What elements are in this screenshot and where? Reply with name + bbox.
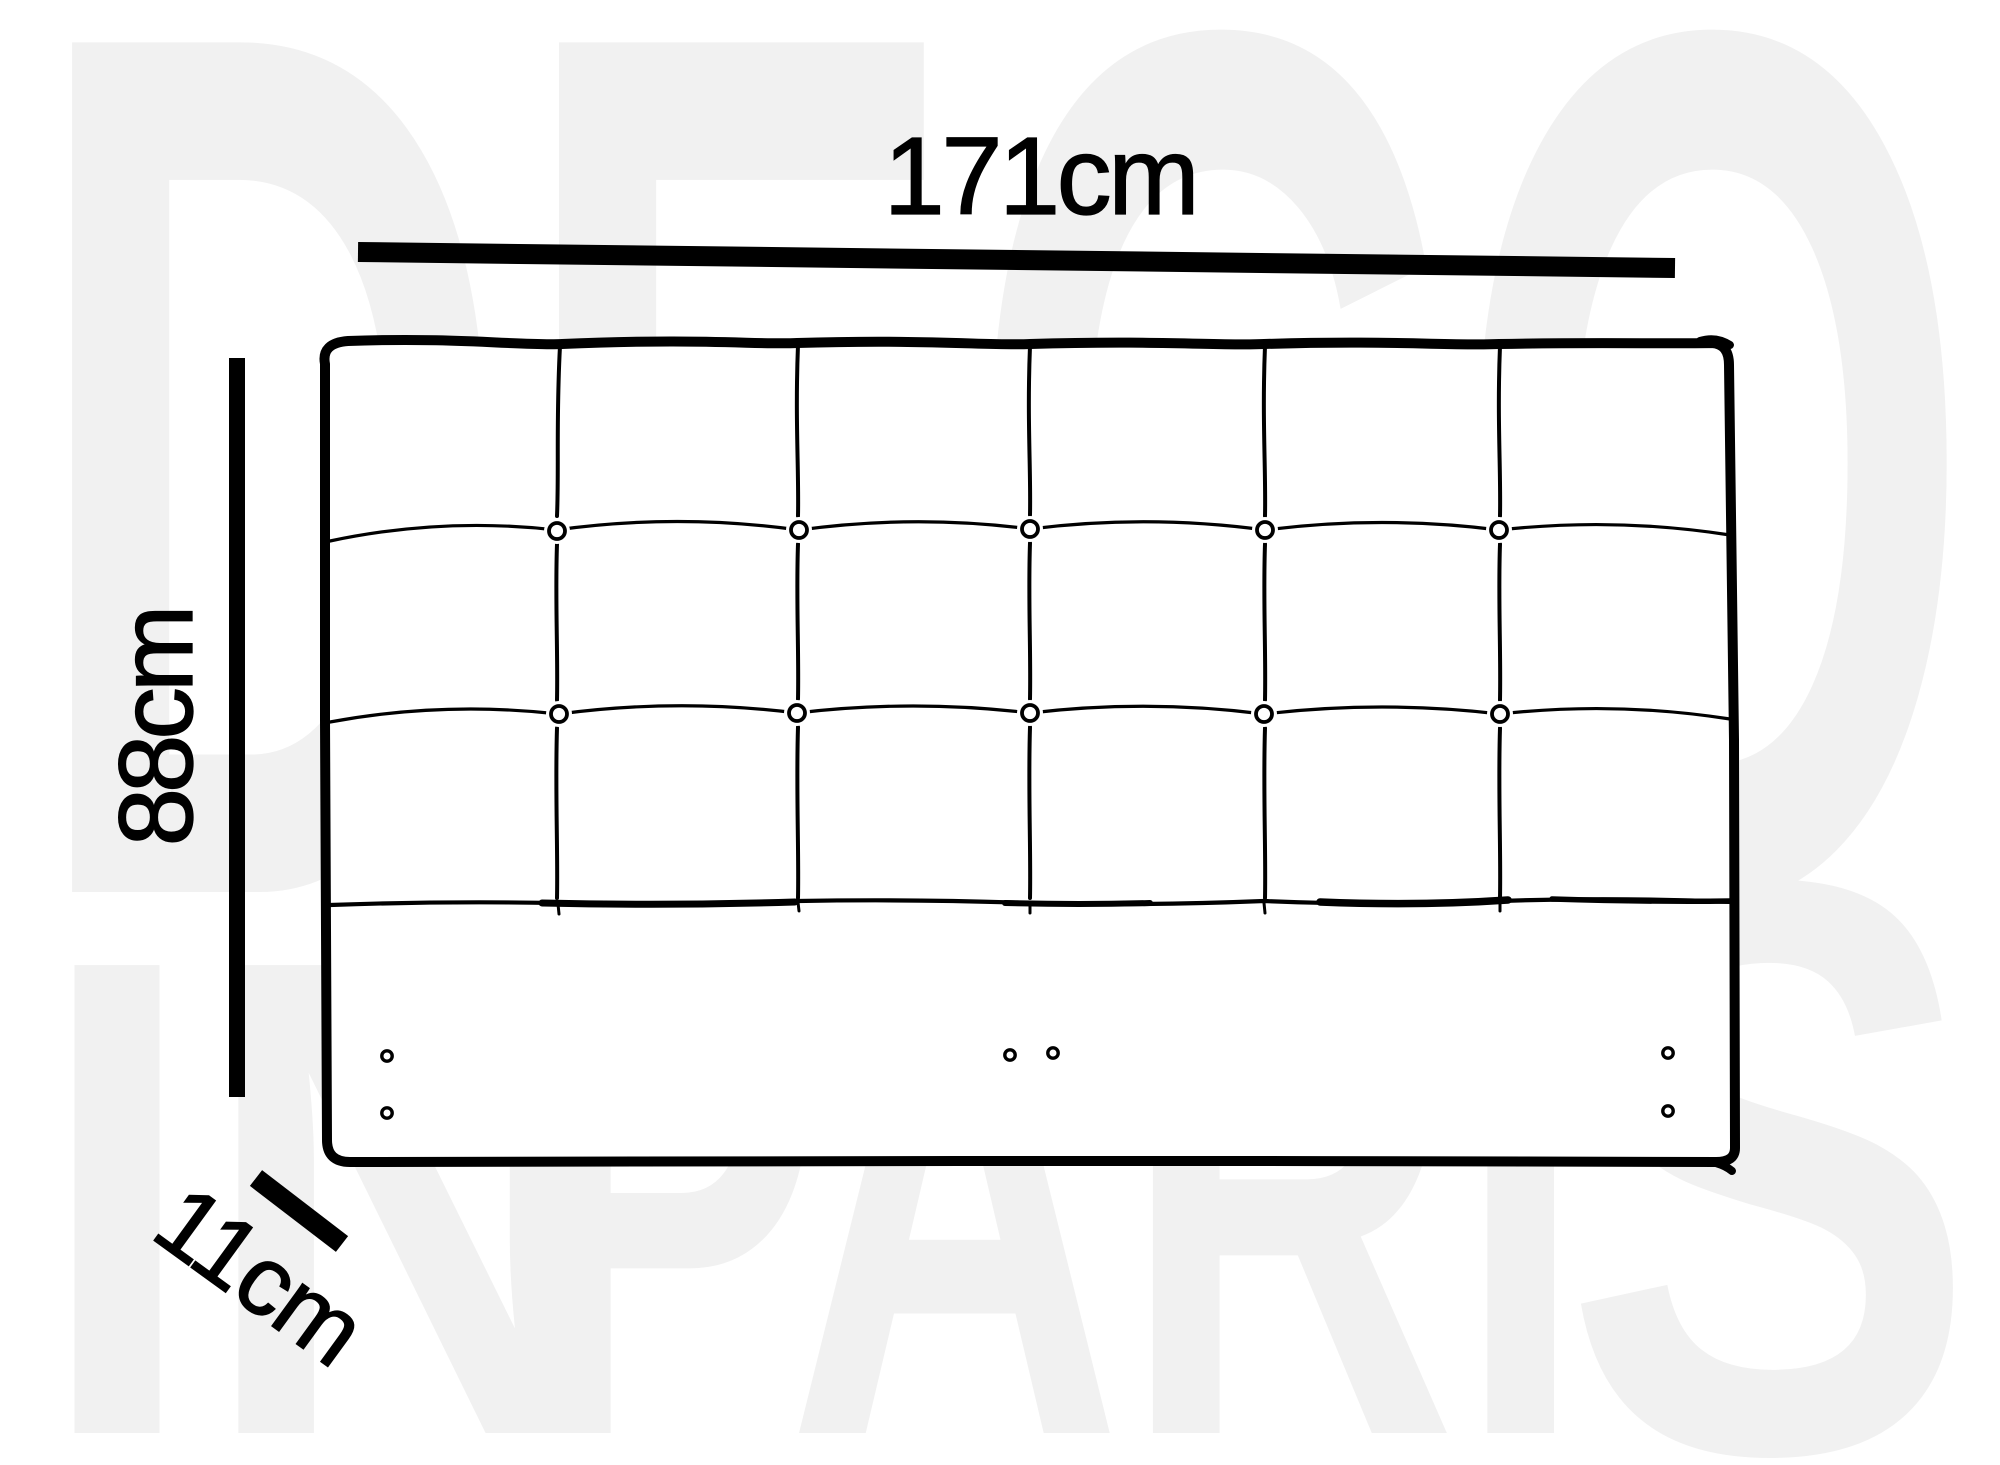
svg-text:88cm: 88cm <box>98 610 215 847</box>
svg-text:171cm: 171cm <box>884 115 1197 238</box>
